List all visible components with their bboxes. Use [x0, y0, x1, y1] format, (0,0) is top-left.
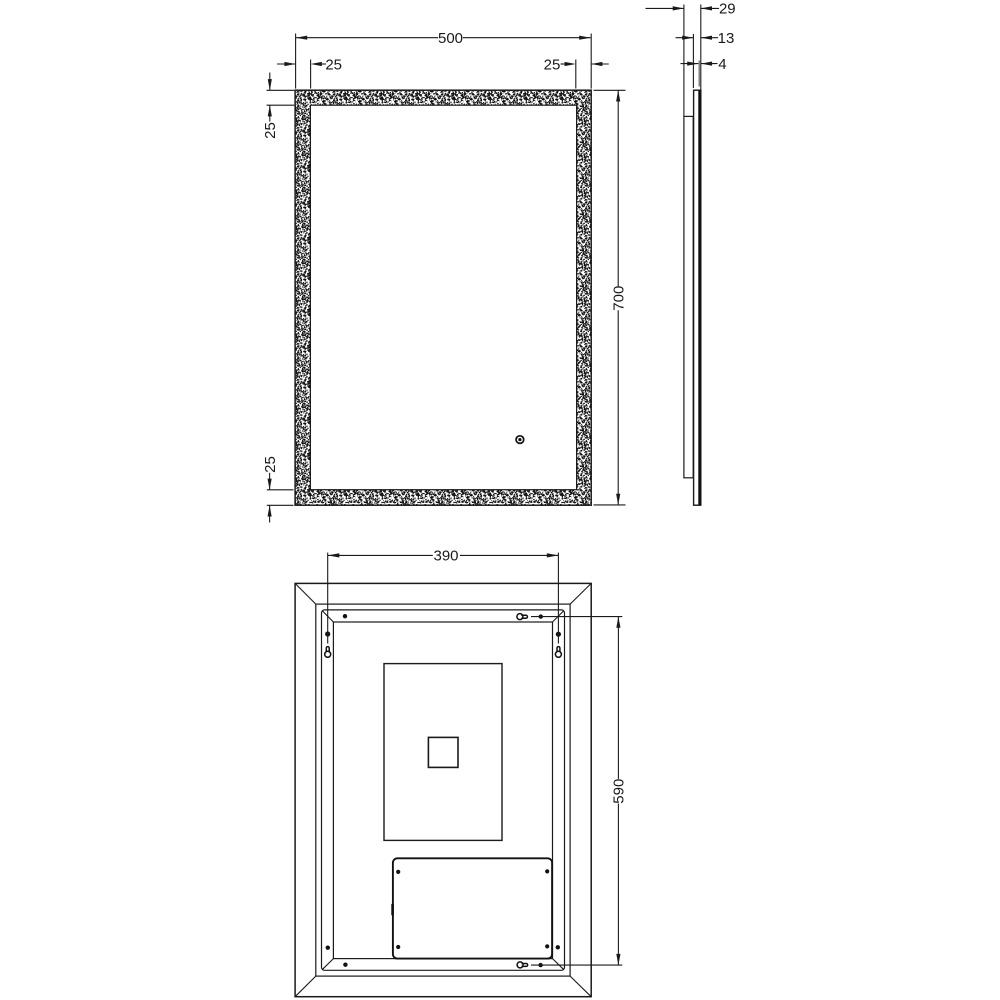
svg-text:700: 700 — [611, 286, 628, 311]
svg-text:4: 4 — [718, 56, 726, 73]
svg-text:500: 500 — [438, 30, 463, 47]
svg-text:13: 13 — [718, 30, 735, 47]
svg-text:25: 25 — [544, 56, 561, 73]
svg-text:25: 25 — [262, 456, 279, 473]
svg-text:25: 25 — [262, 122, 279, 139]
svg-text:590: 590 — [611, 779, 628, 804]
svg-text:25: 25 — [325, 56, 342, 73]
svg-text:390: 390 — [433, 548, 458, 565]
svg-text:29: 29 — [719, 1, 736, 18]
